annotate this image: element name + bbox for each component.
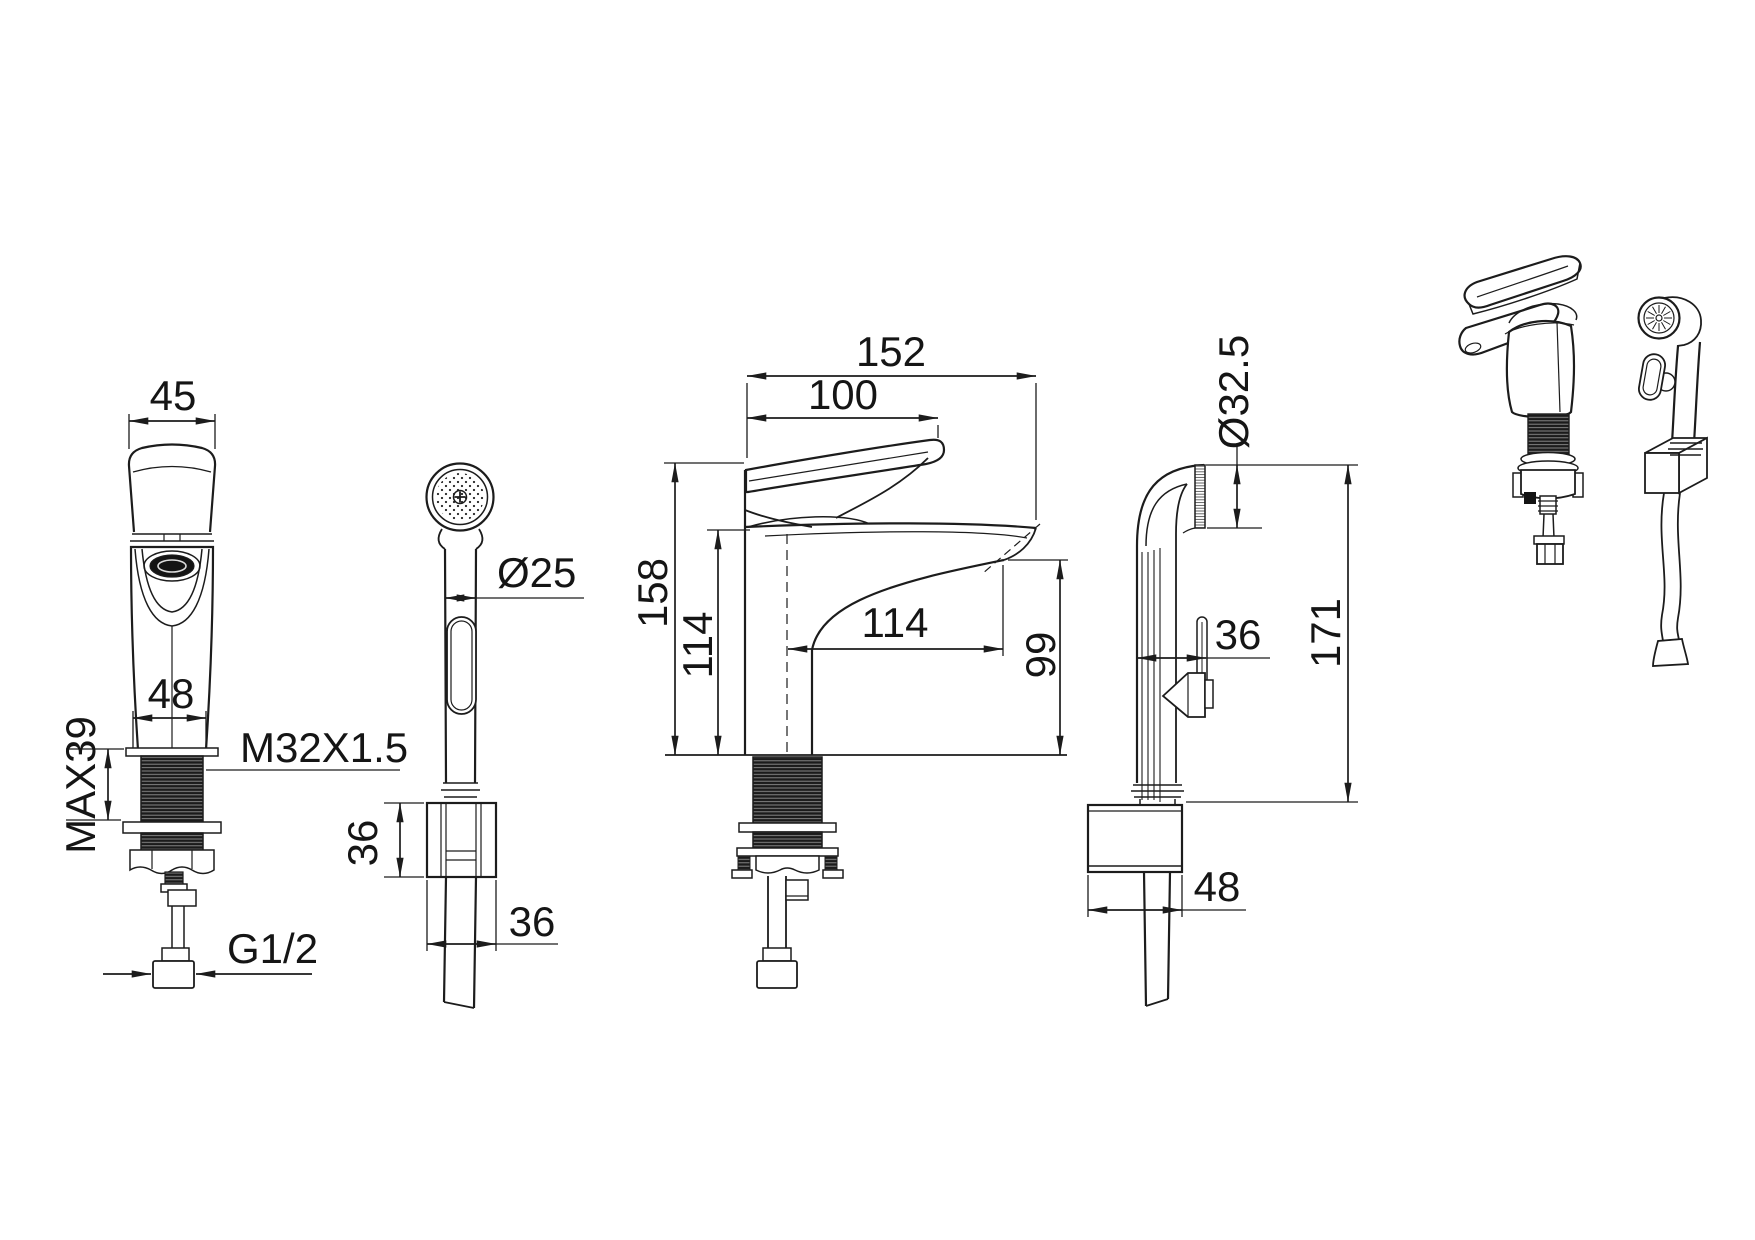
holder-sprayer-body bbox=[1131, 465, 1213, 805]
mounting-nut bbox=[756, 856, 819, 873]
faucet-dimension-drawing: 45 48 MAX39 M32X1.5 G1/2 bbox=[0, 0, 1755, 1240]
faucet-handle bbox=[129, 445, 215, 533]
tail-pipe bbox=[768, 876, 786, 948]
stud-right bbox=[825, 856, 837, 870]
clamp-plate bbox=[737, 848, 838, 856]
outlet-hidden-line bbox=[982, 524, 1040, 574]
sprayer-handle bbox=[439, 529, 483, 797]
dim-total-depth: 152 bbox=[747, 328, 1036, 520]
dim-holder-total-height-label: 171 bbox=[1302, 598, 1349, 668]
pipe-3d bbox=[1543, 514, 1554, 538]
spray-face-edge bbox=[1195, 465, 1205, 528]
mounting-nut bbox=[130, 850, 214, 874]
faucet-body bbox=[131, 547, 213, 750]
dim-spout-reach-label: 114 bbox=[862, 599, 929, 646]
dim-inlet: G1/2 bbox=[103, 925, 318, 974]
handle-outline bbox=[129, 445, 215, 533]
dim-total-height-label: 158 bbox=[629, 558, 676, 628]
dim-max-thread-label: MAX39 bbox=[57, 716, 104, 854]
sprayer-head bbox=[427, 464, 494, 531]
hose-end-3d bbox=[1653, 639, 1688, 666]
threaded-shank bbox=[753, 757, 822, 823]
holder-hose bbox=[1144, 872, 1170, 1006]
connector-cylinder bbox=[168, 890, 196, 906]
shank-3d bbox=[1528, 414, 1569, 455]
faucet-side-handle bbox=[746, 440, 944, 518]
grip-ridges bbox=[1142, 548, 1160, 802]
dim-body-width-label: 48 bbox=[148, 670, 195, 717]
handle-3d bbox=[1672, 342, 1700, 443]
bracket-outline bbox=[427, 803, 496, 877]
dim-holder-total-height: 171 bbox=[1186, 465, 1358, 802]
stud-left bbox=[738, 856, 750, 870]
dim-bracket-width-label: 36 bbox=[509, 898, 556, 945]
end-washer-3d bbox=[1534, 536, 1564, 544]
threaded-shank bbox=[141, 756, 203, 822]
pipe-neck bbox=[763, 948, 791, 961]
label-thread-spec: M32X1.5 bbox=[206, 724, 408, 771]
supply-pipe bbox=[172, 906, 184, 948]
side-outlet bbox=[786, 880, 808, 900]
clip-screw bbox=[1205, 680, 1213, 708]
spout-top-edge bbox=[745, 523, 1036, 528]
perspective-views bbox=[1459, 256, 1707, 666]
holder-base bbox=[1088, 805, 1182, 872]
dim-handle-depth-label: 100 bbox=[808, 371, 878, 418]
dim-grip-diameter: Ø25 bbox=[445, 549, 584, 598]
sprayer-3d bbox=[1637, 297, 1707, 666]
threaded-shank-lower bbox=[141, 833, 203, 850]
stud-cap-left bbox=[732, 870, 752, 878]
stud-cap-right bbox=[823, 870, 843, 878]
holder-front-3d bbox=[1645, 453, 1679, 493]
wall-bracket bbox=[427, 803, 496, 877]
washer bbox=[123, 822, 221, 833]
g12-nut-3d bbox=[1537, 544, 1563, 564]
faucet-handle-joint bbox=[130, 534, 214, 547]
dim-body-offset-label: 36 bbox=[1215, 611, 1262, 658]
supply-pipe-assembly bbox=[153, 872, 196, 988]
dim-handle-width-label: 45 bbox=[150, 372, 197, 419]
dim-spout-reach: 114 bbox=[788, 565, 1003, 656]
dim-handle-width: 45 bbox=[129, 372, 215, 449]
dim-deck-height-label: 114 bbox=[674, 612, 721, 679]
sprayer-profile bbox=[1137, 465, 1204, 783]
dim-grip-diameter-label: Ø25 bbox=[497, 549, 576, 596]
aerator-icon bbox=[150, 555, 194, 577]
faucet-3d bbox=[1459, 256, 1583, 564]
dim-handle-depth: 100 bbox=[747, 371, 938, 438]
g12-connector bbox=[153, 961, 194, 988]
handle-end-rings bbox=[441, 783, 480, 797]
dim-bracket-height-label: 36 bbox=[339, 820, 386, 867]
sprayer-front-edge bbox=[1176, 484, 1187, 783]
washer bbox=[739, 823, 836, 832]
pipe-neck bbox=[162, 948, 189, 961]
thread-spec-label: M32X1.5 bbox=[240, 724, 408, 771]
faucet-front-view: 45 48 MAX39 M32X1.5 G1/2 bbox=[57, 372, 408, 988]
head-3d bbox=[1639, 298, 1680, 339]
dim-outlet-height: 99 bbox=[1008, 560, 1068, 755]
dim-head-diameter-label: Ø32.5 bbox=[1210, 335, 1257, 449]
dim-total-height: 158 bbox=[629, 463, 744, 755]
dim-inlet-label: G1/2 bbox=[227, 925, 318, 972]
base-flange bbox=[126, 748, 218, 756]
inlet-connector bbox=[757, 961, 797, 988]
sprayer-holder-view: Ø32.5 36 171 48 bbox=[1088, 335, 1358, 1006]
technical-drawing-sheet: 45 48 MAX39 M32X1.5 G1/2 bbox=[0, 0, 1755, 1240]
faucet-side-shank bbox=[732, 757, 843, 988]
dim-bracket-height: 36 bbox=[339, 803, 424, 877]
dim-max-thread: MAX39 bbox=[57, 716, 124, 854]
faucet-side-view: 152 100 158 114 114 99 bbox=[629, 328, 1068, 988]
spout-underside bbox=[812, 560, 1004, 755]
sprayer-hose bbox=[444, 877, 476, 1008]
mounting-shank bbox=[123, 748, 221, 874]
holder-clip bbox=[1163, 673, 1205, 717]
dim-base-width-label: 48 bbox=[1194, 863, 1241, 910]
dim-outlet-height-label: 99 bbox=[1017, 632, 1064, 679]
handle-end-rings bbox=[1131, 785, 1184, 797]
nut-tab-3d bbox=[1524, 492, 1536, 504]
dim-deck-height: 114 bbox=[674, 530, 750, 755]
outlet-face bbox=[1004, 528, 1036, 560]
dim-head-diameter: Ø32.5 bbox=[1206, 335, 1358, 528]
hose-3d bbox=[1661, 493, 1681, 641]
dim-total-depth-label: 152 bbox=[856, 328, 926, 375]
body-3d bbox=[1507, 321, 1574, 417]
base-block bbox=[1088, 805, 1182, 872]
